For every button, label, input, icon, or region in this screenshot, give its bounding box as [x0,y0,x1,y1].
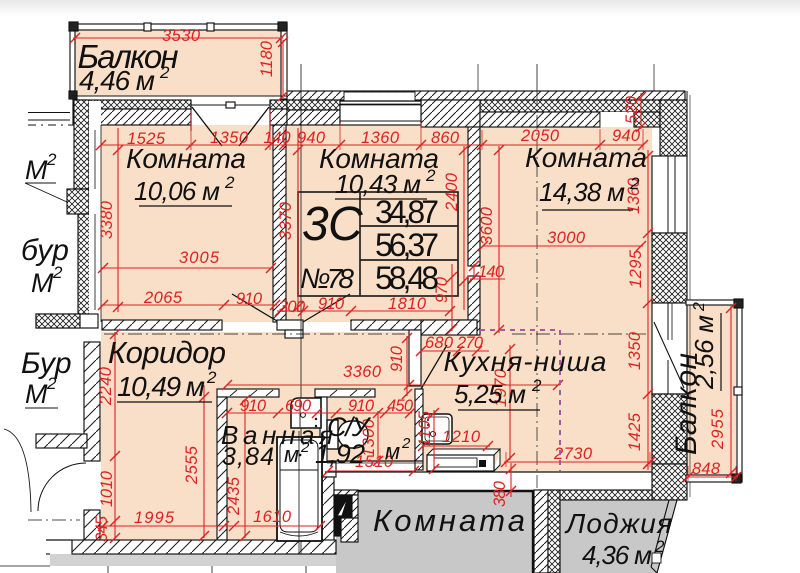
svg-text:4,46 м: 4,46 м [79,65,155,96]
svg-text:1295: 1295 [627,249,645,288]
svg-text:3,84: 3,84 [222,443,274,471]
svg-text:3000: 3000 [547,229,586,247]
svg-text:2: 2 [401,435,411,452]
svg-text:2: 2 [159,63,170,82]
svg-text:1995: 1995 [134,509,175,527]
svg-text:2: 2 [425,166,436,185]
svg-text:3600: 3600 [478,206,496,245]
svg-text:58,48: 58,48 [375,260,439,296]
svg-text:910: 910 [388,345,406,372]
svg-text:10,06 м: 10,06 м [134,176,220,206]
svg-text:910: 910 [240,397,267,415]
svg-text:2: 2 [224,173,235,192]
svg-text:14,38 м: 14,38 м [539,177,625,207]
svg-text:2955: 2955 [709,408,727,450]
svg-text:2400: 2400 [443,172,461,212]
svg-text:М: М [25,155,48,185]
svg-text:М: М [31,268,54,298]
svg-text:3360: 3360 [343,363,382,381]
svg-text:Кухня-ниша: Кухня-ниша [444,346,607,377]
svg-text:34,87: 34,87 [375,194,439,230]
svg-text:2: 2 [206,368,217,387]
svg-text:1350: 1350 [626,331,644,370]
svg-text:2,56 м: 2,56 м [689,315,719,390]
svg-text:1210: 1210 [442,428,481,446]
svg-text:Комната: Комната [373,503,525,538]
svg-text:С: С [328,198,363,251]
svg-text:С/У: С/У [327,412,372,442]
svg-text:690: 690 [285,397,312,415]
svg-text:2730: 2730 [553,445,593,463]
svg-text:2555: 2555 [183,445,201,485]
svg-text:Коридор: Коридор [108,335,226,370]
svg-text:4,36 м: 4,36 м [582,540,652,570]
svg-text:848: 848 [692,460,721,478]
svg-text:2: 2 [52,263,63,282]
svg-text:Комната: Комната [525,142,647,173]
svg-text:1105: 1105 [416,410,434,447]
svg-text:10,49 м: 10,49 м [117,371,205,402]
svg-text:2240: 2240 [97,366,115,406]
svg-text:2: 2 [531,376,542,395]
svg-text:1010: 1010 [98,470,116,507]
svg-text:Комната: Комната [126,143,246,174]
svg-text:1,92: 1,92 [315,439,365,469]
svg-text:2: 2 [46,150,57,169]
svg-text:2435: 2435 [225,476,243,516]
svg-text:м: м [284,442,299,467]
svg-text:910: 910 [236,290,263,308]
svg-text:140: 140 [478,263,505,281]
svg-text:5,25 м: 5,25 м [454,379,526,409]
svg-text:3380: 3380 [98,200,116,239]
svg-text:3: 3 [302,198,329,251]
svg-text:520: 520 [623,95,641,124]
svg-text:2065: 2065 [143,289,183,307]
svg-text:140: 140 [264,129,292,147]
svg-text:М: М [25,379,48,409]
svg-text:1610: 1610 [253,508,292,526]
svg-text:2: 2 [629,174,640,193]
svg-text:2: 2 [691,302,708,312]
svg-text:1180: 1180 [258,40,276,77]
svg-text:1425: 1425 [626,412,644,451]
svg-text:2: 2 [654,537,665,556]
svg-text:2: 2 [300,439,310,456]
svg-text:345: 345 [93,515,111,542]
svg-text:№78: №78 [300,263,354,294]
svg-text:1810: 1810 [388,295,427,313]
svg-text:3005: 3005 [179,249,220,267]
svg-text:2: 2 [46,374,57,393]
svg-text:910: 910 [318,295,345,313]
svg-text:450: 450 [387,397,414,415]
svg-text:м: м [385,439,400,464]
svg-text:Лоджия: Лоджия [564,508,672,539]
svg-text:3370: 3370 [277,201,295,240]
svg-text:300: 300 [279,298,306,316]
svg-text:56,37: 56,37 [375,227,439,263]
